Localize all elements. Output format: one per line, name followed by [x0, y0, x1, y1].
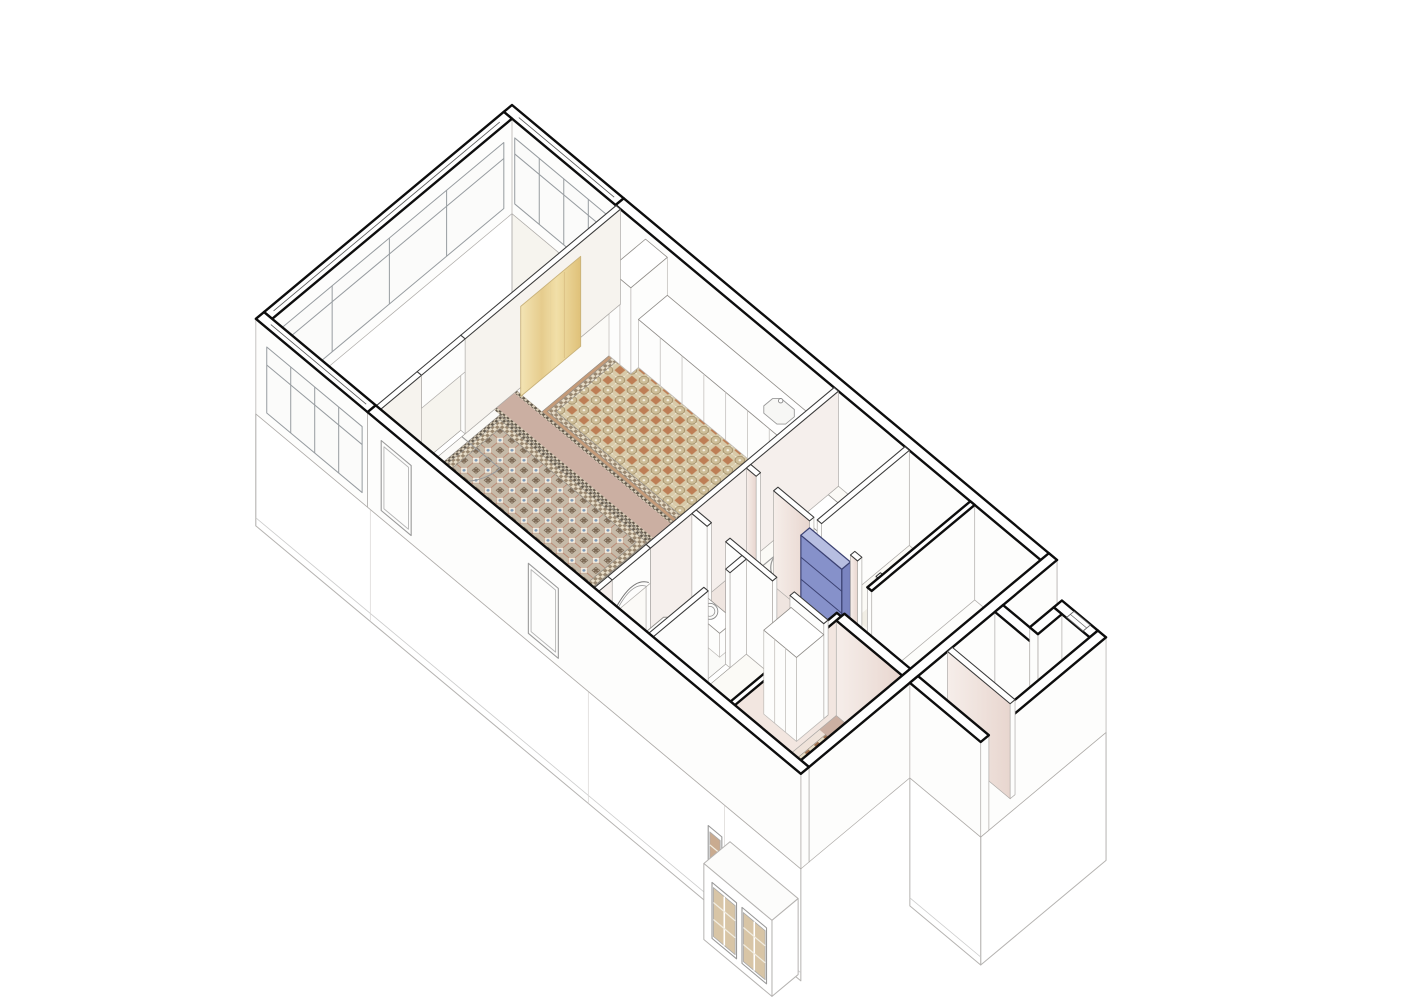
apartment-axonometric-drawing [0, 0, 1414, 1000]
south-wall-side [801, 767, 809, 869]
axonometric-floor-plan-svg [0, 0, 1414, 1000]
annex-partition-side [1010, 700, 1015, 799]
bath-east-wall-front [726, 569, 730, 668]
annex-south-wall-side [981, 735, 989, 837]
walls-and-fixtures [256, 105, 1106, 996]
bath-east-wall-side [730, 559, 746, 668]
corridor-wall-side [756, 473, 760, 572]
corridor-south-wall-side [824, 620, 828, 719]
kitchen-faucet [778, 399, 782, 403]
